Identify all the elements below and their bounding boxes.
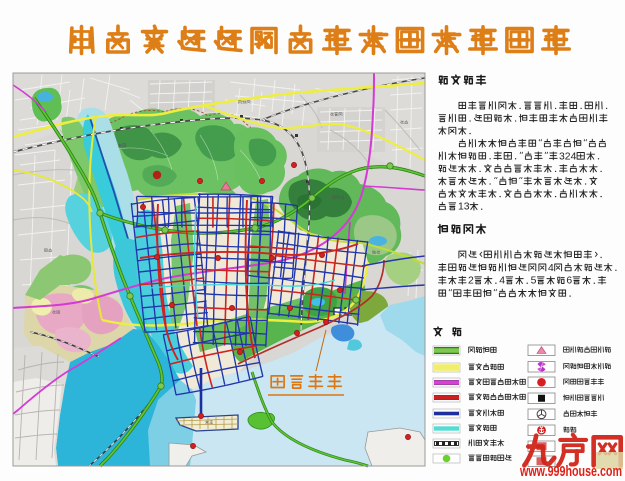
svg-text:4: 4 [548,263,554,274]
svg-text:3: 3 [464,202,470,213]
svg-text:2: 2 [468,276,474,287]
svg-text:6: 6 [566,276,572,287]
svg-text:www.999house.com: www.999house.com [519,463,622,480]
svg-text:4: 4 [571,151,577,162]
svg-text:5: 5 [531,276,537,287]
svg-text:4: 4 [499,276,505,287]
